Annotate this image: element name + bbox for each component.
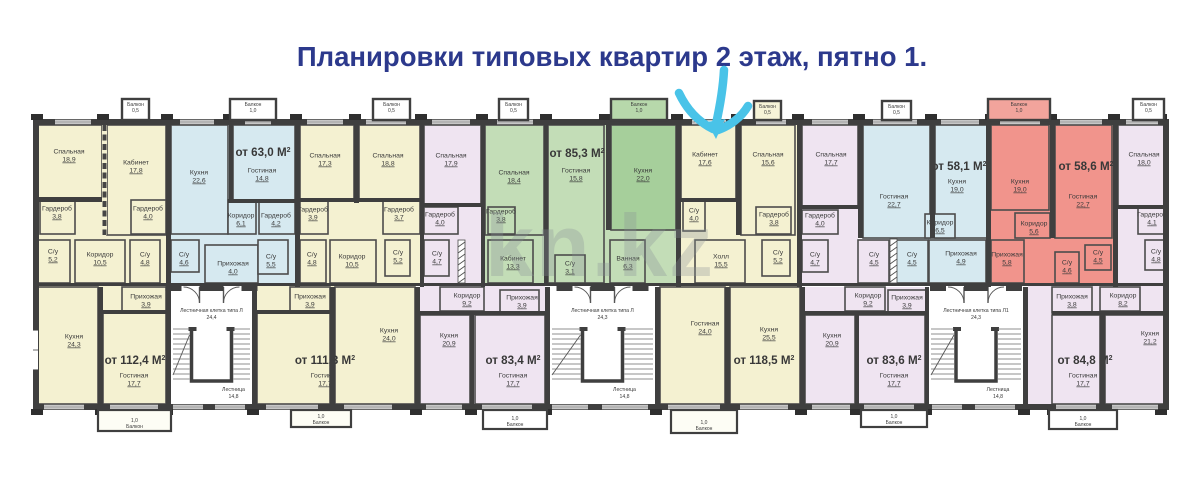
svg-text:Прихожая: Прихожая bbox=[891, 295, 923, 302]
svg-text:1,0: 1,0 bbox=[250, 108, 257, 114]
svg-text:3,7: 3,7 bbox=[394, 215, 404, 222]
svg-text:Планировки типовых квартир 2 э: Планировки типовых квартир 2 этаж, пятно… bbox=[297, 41, 927, 72]
svg-text:Гостиная: Гостиная bbox=[562, 168, 591, 175]
svg-text:Гардероб: Гардероб bbox=[298, 206, 328, 214]
svg-text:Коридор: Коридор bbox=[1110, 293, 1137, 300]
svg-text:19,0: 19,0 bbox=[1013, 187, 1026, 194]
svg-text:Лестничная клетка типа Л: Лестничная клетка типа Л bbox=[180, 308, 243, 314]
svg-text:Гардероб: Гардероб bbox=[261, 212, 291, 220]
svg-text:15,8: 15,8 bbox=[569, 176, 582, 183]
svg-text:Кабинет: Кабинет bbox=[692, 151, 718, 159]
svg-text:С/у: С/у bbox=[307, 252, 318, 259]
svg-text:18,4: 18,4 bbox=[507, 178, 520, 185]
svg-text:Гостиная: Гостиная bbox=[1069, 373, 1098, 380]
svg-text:Гостиная: Гостиная bbox=[880, 194, 909, 201]
svg-text:22,7: 22,7 bbox=[887, 202, 900, 209]
svg-text:4,5: 4,5 bbox=[1093, 258, 1103, 265]
svg-text:Балкон: Балкон bbox=[696, 426, 713, 432]
svg-text:С/у: С/у bbox=[48, 249, 59, 256]
svg-text:3,8: 3,8 bbox=[769, 220, 779, 227]
svg-text:от 111,3 М2: от 111,3 М2 bbox=[295, 354, 355, 367]
svg-text:17,7: 17,7 bbox=[318, 381, 331, 388]
svg-text:0,5: 0,5 bbox=[764, 110, 771, 116]
svg-text:Гардероб: Гардероб bbox=[1137, 211, 1167, 219]
svg-text:15,5: 15,5 bbox=[714, 262, 727, 269]
svg-text:Кухня: Кухня bbox=[440, 333, 459, 340]
svg-text:22,6: 22,6 bbox=[192, 178, 205, 185]
svg-text:Кухня: Кухня bbox=[1011, 179, 1030, 186]
svg-text:6,1: 6,1 bbox=[236, 221, 246, 228]
svg-text:С/у: С/у bbox=[869, 252, 880, 259]
svg-text:Балкон: Балкон bbox=[507, 422, 524, 428]
svg-text:Балкон: Балкон bbox=[1075, 422, 1092, 428]
svg-text:Спальная: Спальная bbox=[309, 153, 340, 160]
svg-text:17,7: 17,7 bbox=[887, 381, 900, 388]
svg-text:Коридор: Коридор bbox=[1021, 221, 1048, 228]
svg-text:0,5: 0,5 bbox=[893, 110, 900, 116]
svg-text:Кухня: Кухня bbox=[760, 327, 779, 334]
svg-text:24,3: 24,3 bbox=[597, 315, 607, 321]
svg-text:0,5: 0,5 bbox=[388, 108, 395, 114]
svg-text:Гардероб: Гардероб bbox=[133, 205, 163, 213]
svg-text:от 85,3 М2: от 85,3 М2 bbox=[549, 147, 604, 160]
svg-text:10,5: 10,5 bbox=[345, 262, 358, 269]
svg-text:4,7: 4,7 bbox=[432, 259, 442, 266]
svg-text:17,3: 17,3 bbox=[318, 161, 331, 168]
svg-text:С/у: С/у bbox=[432, 251, 443, 258]
svg-text:17,9: 17,9 bbox=[444, 161, 457, 168]
svg-text:Гардероб: Гардероб bbox=[425, 211, 455, 219]
svg-text:Гостиная: Гостиная bbox=[499, 373, 528, 380]
svg-text:17,7: 17,7 bbox=[127, 381, 140, 388]
svg-text:Коридор: Коридор bbox=[87, 252, 114, 259]
svg-text:Гардероб: Гардероб bbox=[805, 212, 835, 220]
svg-text:4,5: 4,5 bbox=[869, 260, 879, 267]
svg-text:3,9: 3,9 bbox=[141, 302, 151, 309]
svg-text:Гардероб: Гардероб bbox=[384, 206, 414, 214]
svg-text:5,5: 5,5 bbox=[266, 262, 276, 269]
svg-text:С/у: С/у bbox=[907, 252, 918, 259]
svg-text:20,9: 20,9 bbox=[825, 341, 838, 348]
svg-text:от 58,6 М2: от 58,6 М2 bbox=[1058, 160, 1113, 173]
svg-text:Коридор: Коридор bbox=[228, 213, 255, 220]
svg-text:18,8: 18,8 bbox=[381, 161, 394, 168]
svg-text:4,8: 4,8 bbox=[140, 260, 150, 267]
svg-text:24,0: 24,0 bbox=[698, 329, 711, 336]
svg-text:4,1: 4,1 bbox=[1147, 220, 1157, 227]
svg-text:9,2: 9,2 bbox=[462, 301, 472, 308]
svg-text:3,9: 3,9 bbox=[308, 215, 318, 222]
svg-text:Кухня: Кухня bbox=[948, 179, 967, 186]
svg-text:Гардероб: Гардероб bbox=[42, 205, 72, 213]
svg-text:kn.kz: kn.kz bbox=[485, 196, 715, 295]
svg-text:Прихожая: Прихожая bbox=[130, 294, 162, 301]
svg-text:4,5: 4,5 bbox=[907, 260, 917, 267]
svg-text:14,8: 14,8 bbox=[619, 394, 629, 400]
svg-text:4,0: 4,0 bbox=[143, 214, 153, 221]
svg-text:С/у: С/у bbox=[1093, 250, 1104, 257]
svg-text:Лестница: Лестница bbox=[613, 387, 636, 393]
svg-text:Лестница: Лестница bbox=[987, 387, 1010, 393]
svg-text:3,9: 3,9 bbox=[902, 303, 912, 310]
svg-text:21,2: 21,2 bbox=[1143, 339, 1156, 346]
svg-text:Спальная: Спальная bbox=[498, 170, 529, 177]
svg-text:Балкон: Балкон bbox=[126, 424, 143, 430]
svg-text:10,5: 10,5 bbox=[93, 260, 106, 267]
svg-text:С/у: С/у bbox=[393, 250, 404, 257]
svg-text:от 58,1 М2: от 58,1 М2 bbox=[931, 160, 986, 173]
svg-text:Спальная: Спальная bbox=[752, 152, 783, 159]
svg-text:1,0: 1,0 bbox=[636, 108, 643, 114]
svg-text:24,3: 24,3 bbox=[971, 315, 981, 321]
svg-text:4,8: 4,8 bbox=[307, 260, 317, 267]
svg-text:Гостиная: Гостиная bbox=[1069, 194, 1098, 201]
svg-text:Прихожая: Прихожая bbox=[506, 295, 538, 302]
svg-text:С/у: С/у bbox=[1151, 249, 1162, 256]
svg-text:3,8: 3,8 bbox=[1067, 302, 1077, 309]
svg-text:4,7: 4,7 bbox=[810, 260, 820, 267]
svg-text:4,6: 4,6 bbox=[179, 260, 189, 267]
svg-text:Гостиная: Гостиная bbox=[691, 321, 720, 328]
svg-text:Спальная: Спальная bbox=[53, 149, 84, 156]
svg-text:С/у: С/у bbox=[773, 250, 784, 257]
svg-text:5,2: 5,2 bbox=[48, 257, 58, 264]
svg-text:18,0: 18,0 bbox=[1137, 160, 1150, 167]
svg-text:от 118,5 М2: от 118,5 М2 bbox=[734, 354, 795, 367]
svg-text:1,0: 1,0 bbox=[1016, 108, 1023, 114]
svg-text:14,8: 14,8 bbox=[255, 176, 268, 183]
svg-text:20,9: 20,9 bbox=[442, 341, 455, 348]
svg-text:Лестничная клетка типа Л1: Лестничная клетка типа Л1 bbox=[943, 308, 1009, 314]
svg-text:17,7: 17,7 bbox=[824, 160, 837, 167]
svg-text:Кабинет: Кабинет bbox=[123, 159, 149, 167]
svg-text:17,6: 17,6 bbox=[698, 160, 711, 167]
svg-text:Балкон: Балкон bbox=[886, 420, 903, 426]
svg-text:24,0: 24,0 bbox=[382, 336, 395, 343]
svg-text:Спальная: Спальная bbox=[1128, 152, 1159, 159]
svg-text:3,8: 3,8 bbox=[52, 214, 62, 221]
svg-text:22,0: 22,0 bbox=[636, 176, 649, 183]
svg-text:Прихожая: Прихожая bbox=[294, 294, 326, 301]
svg-text:18,9: 18,9 bbox=[62, 157, 75, 164]
svg-text:0,5: 0,5 bbox=[132, 108, 139, 114]
svg-text:С/у: С/у bbox=[179, 252, 190, 259]
svg-text:Лестничная клетка типа Л: Лестничная клетка типа Л bbox=[571, 308, 634, 314]
svg-text:15,6: 15,6 bbox=[761, 160, 774, 167]
svg-text:24,3: 24,3 bbox=[67, 342, 80, 349]
svg-text:Балкон: Балкон bbox=[313, 420, 330, 426]
svg-text:5,2: 5,2 bbox=[393, 258, 403, 265]
svg-text:Лестница: Лестница bbox=[222, 387, 245, 393]
svg-text:17,7: 17,7 bbox=[1076, 381, 1089, 388]
svg-text:Прихожая: Прихожая bbox=[1056, 294, 1088, 301]
svg-text:3,9: 3,9 bbox=[305, 302, 315, 309]
svg-text:6,5: 6,5 bbox=[935, 228, 945, 235]
svg-text:19,0: 19,0 bbox=[950, 187, 963, 194]
svg-text:Прихожая: Прихожая bbox=[217, 261, 249, 268]
svg-text:4,6: 4,6 bbox=[1062, 268, 1072, 275]
svg-text:Кухня: Кухня bbox=[1141, 331, 1160, 338]
svg-text:17,7: 17,7 bbox=[506, 381, 519, 388]
svg-text:Кухня: Кухня bbox=[823, 333, 842, 340]
svg-text:0,5: 0,5 bbox=[1145, 108, 1152, 114]
svg-text:от 83,6 М2: от 83,6 М2 bbox=[866, 354, 921, 367]
svg-text:С/у: С/у bbox=[810, 252, 821, 259]
svg-text:Прихожая: Прихожая bbox=[945, 251, 977, 258]
svg-text:4,0: 4,0 bbox=[435, 220, 445, 227]
svg-text:С/у: С/у bbox=[1062, 260, 1073, 267]
svg-text:от 112,4 М2: от 112,4 М2 bbox=[105, 354, 166, 367]
svg-text:Спальная: Спальная bbox=[815, 152, 846, 159]
svg-text:от 63,0 М2: от 63,0 М2 bbox=[235, 146, 290, 159]
svg-text:Кухня: Кухня bbox=[380, 328, 399, 335]
svg-text:Коридор: Коридор bbox=[454, 293, 481, 300]
svg-text:24,4: 24,4 bbox=[206, 315, 216, 321]
svg-text:14,8: 14,8 bbox=[228, 394, 238, 400]
svg-text:3,9: 3,9 bbox=[517, 303, 527, 310]
svg-text:4,2: 4,2 bbox=[271, 221, 281, 228]
svg-text:Спальная: Спальная bbox=[435, 153, 466, 160]
svg-text:Кухня: Кухня bbox=[65, 334, 84, 341]
svg-text:Холл: Холл bbox=[713, 254, 729, 261]
svg-text:8,2: 8,2 bbox=[1118, 301, 1128, 308]
svg-text:14,8: 14,8 bbox=[993, 394, 1003, 400]
svg-text:22,7: 22,7 bbox=[1076, 202, 1089, 209]
svg-text:4,0: 4,0 bbox=[815, 221, 825, 228]
svg-text:Прихожая: Прихожая bbox=[991, 252, 1023, 259]
svg-text:5,8: 5,8 bbox=[1002, 260, 1012, 267]
svg-text:25,5: 25,5 bbox=[762, 335, 775, 342]
svg-text:4,9: 4,9 bbox=[956, 259, 966, 266]
svg-text:5,2: 5,2 bbox=[773, 258, 783, 265]
svg-text:4,8: 4,8 bbox=[1151, 257, 1161, 264]
svg-text:Коридор: Коридор bbox=[339, 254, 366, 261]
svg-text:Гостиная: Гостиная bbox=[120, 373, 149, 380]
svg-text:Гостиная: Гостиная bbox=[248, 168, 277, 175]
svg-text:Кухня: Кухня bbox=[190, 170, 209, 177]
svg-text:Гостиная: Гостиная bbox=[880, 373, 909, 380]
svg-text:от 83,4 М2: от 83,4 М2 bbox=[485, 354, 540, 367]
svg-text:4,0: 4,0 bbox=[228, 269, 238, 276]
svg-text:Гардероб: Гардероб bbox=[759, 211, 789, 219]
svg-text:17,8: 17,8 bbox=[129, 168, 142, 175]
svg-text:0,5: 0,5 bbox=[510, 108, 517, 114]
svg-text:С/у: С/у bbox=[140, 252, 151, 259]
svg-text:Спальная: Спальная bbox=[372, 153, 403, 160]
svg-text:9,2: 9,2 bbox=[863, 301, 873, 308]
svg-text:С/у: С/у bbox=[266, 254, 277, 261]
svg-text:5,6: 5,6 bbox=[1029, 229, 1039, 236]
svg-text:Коридор: Коридор bbox=[855, 293, 882, 300]
svg-text:Кухня: Кухня bbox=[634, 168, 653, 175]
